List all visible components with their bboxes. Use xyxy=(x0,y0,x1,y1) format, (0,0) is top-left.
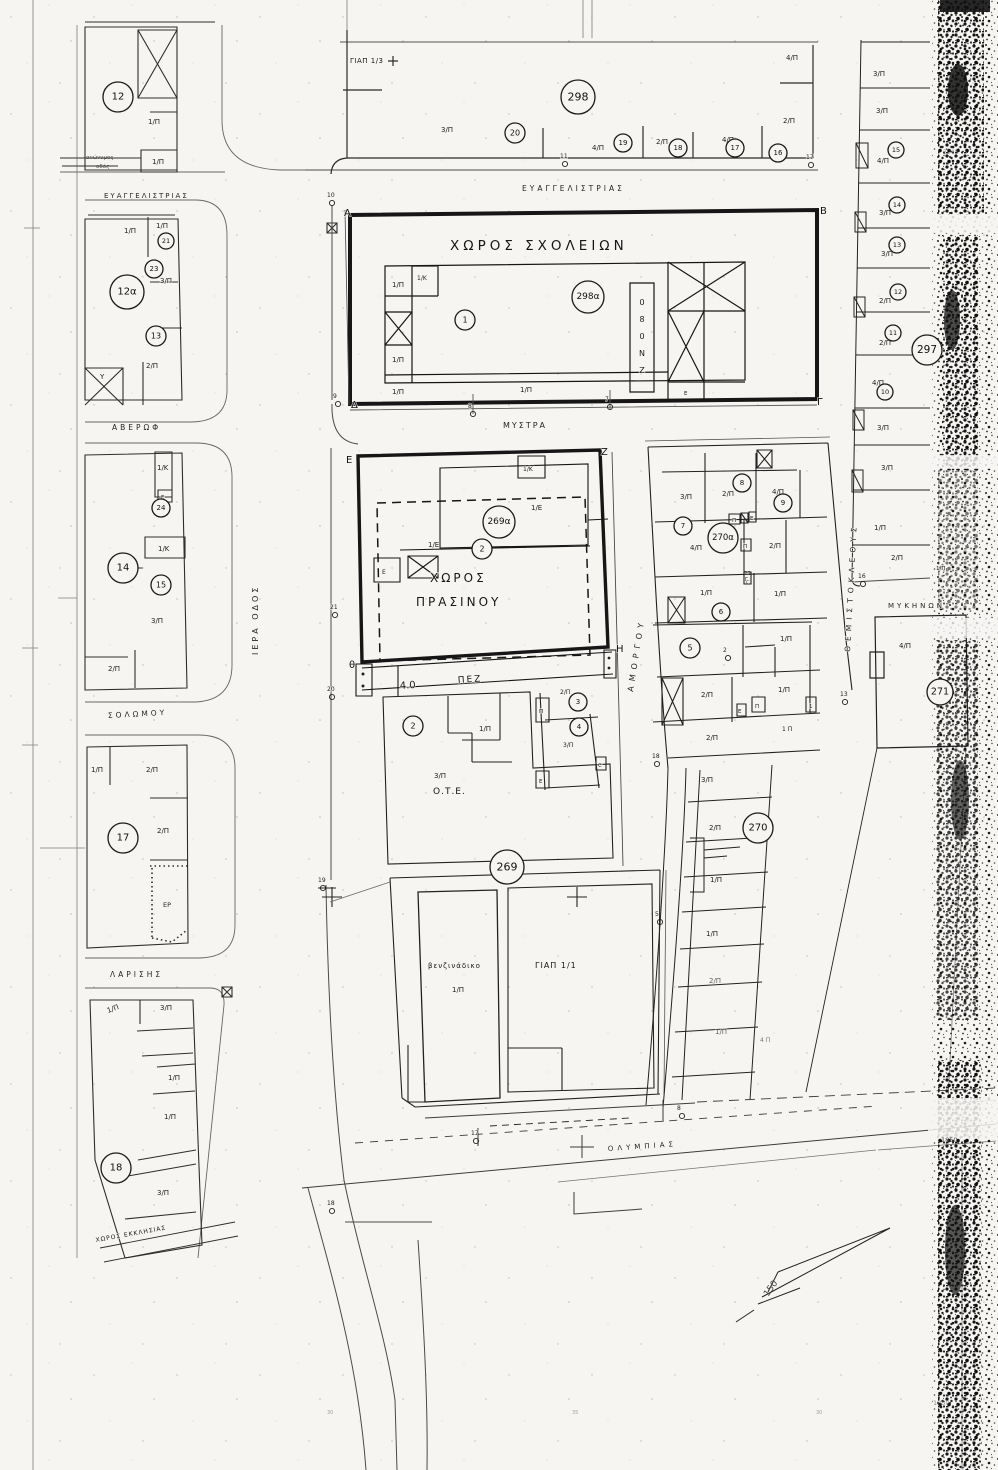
plot-floors-label: 1/Π xyxy=(392,356,404,364)
area-use-label: ΓΙΑΠ 1/1 xyxy=(535,961,577,970)
parcel-number: 7 xyxy=(681,522,685,530)
plot-floors-label: 1/Π xyxy=(706,930,718,938)
parcel-number: 270α xyxy=(712,533,734,543)
plot-floors-label: 2/Π xyxy=(722,490,734,498)
cadastral-map-sheet: ΕΥΑΓΓΕΛΙΣΤΡΙΑΣΕΥΑΓΓΕΛΙΣΤΡΙΑΣΑΒΕΡΩΦΜΥΣΤΡΑ… xyxy=(0,0,998,1470)
corner-letter: Β xyxy=(820,206,827,217)
parcel-number: 18 xyxy=(674,144,683,152)
plot-floors-label: 1/Κ xyxy=(158,545,170,553)
plot-floors-label: 1/Π xyxy=(124,227,136,235)
plot-floors-label: ΕΡ xyxy=(163,901,171,909)
plot-floors-label: 3/Π xyxy=(879,209,891,217)
plot-floors-label: 2/Π xyxy=(891,554,903,562)
area-use-label: βενζινάδικο xyxy=(428,962,481,970)
plot-floors-label: 3/Π xyxy=(160,277,172,285)
plot-floors-label: Ε xyxy=(738,709,742,715)
survey-point-number: 16 xyxy=(858,573,866,580)
plot-floors-label: 3/Π xyxy=(563,742,573,749)
plot-floors-label: 1/Κ xyxy=(417,275,428,282)
area-use-label: Ο.Τ.Ε. xyxy=(433,787,466,797)
parcel-number: 20 xyxy=(510,129,520,138)
plot-floors-label: 3/Π xyxy=(877,424,889,432)
parcel-number: 298 xyxy=(568,91,589,104)
plot-floors-label: 3/Π xyxy=(441,126,453,134)
plot-floors-label: 1/Π xyxy=(780,635,792,643)
survey-point-number: 20 xyxy=(327,686,335,693)
parcel-number: 12 xyxy=(894,288,902,296)
plot-floors-label: 4/Π xyxy=(786,54,798,62)
survey-point-number: 2 xyxy=(723,647,727,654)
plot-floors-label: 1/Π xyxy=(710,876,722,884)
area-use-label: ΧΩΡΟΣ ΣΧΟΛΕΙΩΝ xyxy=(450,238,628,254)
parcel-number: 15 xyxy=(156,581,166,590)
plot-floors-label: 2/Π xyxy=(709,977,721,985)
plot-floors-label: 2/Π xyxy=(706,734,718,742)
parcel-number: 14 xyxy=(117,563,130,574)
parcel-number: 12α xyxy=(117,287,137,298)
survey-point-number: 19 xyxy=(318,877,326,884)
corner-letter: θ xyxy=(349,660,355,671)
plot-floors-label: Π xyxy=(743,544,747,550)
plot-floors-label: 1/Π xyxy=(774,590,786,598)
survey-point-number: 5 xyxy=(655,911,659,918)
annotation-note: 1850 xyxy=(933,1399,950,1407)
plot-floors-label: 4 Π xyxy=(760,1037,770,1044)
parcel-number: 270 xyxy=(748,823,767,834)
survey-point-number: 10 xyxy=(327,192,335,199)
plot-floors-label: 1/Ε xyxy=(428,541,439,549)
corner-letter: Ζ xyxy=(601,447,608,458)
plot-floors-label: 2/Π xyxy=(656,138,668,146)
street-name-label: ΙΕΡΑ ΟΔΟΣ xyxy=(251,585,260,655)
plot-floors-label: 4/Π xyxy=(592,144,604,152)
survey-point-number: 17 xyxy=(806,154,814,161)
plot-floors-label: 2/Π xyxy=(769,542,781,550)
plot-floors-label: 1/Π xyxy=(168,1074,180,1082)
annotation-note: 35 xyxy=(572,1410,578,1416)
plot-floors-label: Ε xyxy=(750,516,754,522)
survey-point-number: 18 xyxy=(327,1200,335,1207)
survey-point-number: 9 xyxy=(333,393,337,400)
corner-letter: Δ xyxy=(351,400,358,411)
parcel-number: 13 xyxy=(893,241,901,249)
plot-floors-label: Ε xyxy=(684,391,688,397)
parcel-number: 4 xyxy=(577,723,582,731)
plot-floors-label: 3/Π xyxy=(151,617,163,625)
plot-floors-label: 2/Π xyxy=(709,824,721,832)
plot-floors-label: 3/Π xyxy=(876,107,888,115)
plot-floors-label: 1/Π xyxy=(152,158,164,166)
plot-floors-label: 3/Π xyxy=(157,1189,169,1197)
plot-floors-label: 2/Π xyxy=(783,117,795,125)
plot-floors-label: 4/Π xyxy=(690,544,702,552)
survey-point-number: 21 xyxy=(330,604,338,611)
plot-floors-label: 4/Π xyxy=(877,157,889,165)
plot-floors-label: 1/Π xyxy=(164,1113,176,1121)
street-name-label: ΕΥΑΓΓΕΛΙΣΤΡΙΑΣ xyxy=(104,192,189,200)
plot-floors-label: 1/Π xyxy=(936,566,946,572)
corner-letter: Γ xyxy=(817,397,823,408)
annotation-note: C xyxy=(746,580,750,586)
corner-letter: Α xyxy=(344,208,351,219)
survey-point-number: 18 xyxy=(652,753,660,760)
annotation-note: 1850 xyxy=(941,1136,958,1144)
annotation-note: οδός xyxy=(96,163,109,170)
plot-floors-label: 1/Π xyxy=(479,725,491,733)
parcel-number: 14 xyxy=(893,201,901,209)
vertical-building-label-letter: Ζ xyxy=(639,366,645,375)
street-name-label: ΕΥΑΓΓΕΛΙΣΤΡΙΑΣ xyxy=(522,184,625,193)
cadastral-map: ΕΥΑΓΓΕΛΙΣΤΡΙΑΣΕΥΑΓΓΕΛΙΣΤΡΙΑΣΑΒΕΡΩΦΜΥΣΤΡΑ… xyxy=(0,0,998,1470)
scan-noise-band xyxy=(928,0,998,1470)
area-use-label: ΠΕΖ xyxy=(458,674,483,686)
plot-floors-label: 2/Π xyxy=(560,689,570,696)
plot-floors-label: 2/Π xyxy=(701,691,713,699)
parcel-number: 298α xyxy=(576,292,599,302)
plot-floors-label: 3/Π xyxy=(881,464,893,472)
annotation-note: 22 xyxy=(744,571,751,577)
vertical-building-label-letter: 0 xyxy=(639,298,644,307)
parcel-number: 3 xyxy=(576,698,580,706)
plot-floors-label: Ε xyxy=(539,779,543,785)
parcel-number: 271 xyxy=(931,687,949,698)
annotation-note: 30 xyxy=(327,1410,333,1416)
street-name-label: ΜΥΚΗΝΩΝ xyxy=(888,602,945,610)
plot-floors-label: 3/Π xyxy=(434,772,446,780)
parcel-number: 13 xyxy=(151,332,161,341)
parcel-number: 10 xyxy=(881,388,889,396)
plot-floors-label: 3/Π xyxy=(873,70,885,78)
parcel-number: 2 xyxy=(410,722,415,731)
plot-floors-label: 1/Π xyxy=(91,766,103,774)
parcel-number: 15 xyxy=(892,146,900,154)
plot-floors-label: 2/Π xyxy=(108,665,120,673)
plot-floors-label: Π xyxy=(732,518,736,524)
survey-point-number: 8 xyxy=(677,1105,681,1112)
plot-floors-label: 1/Κ xyxy=(523,466,534,473)
plot-floors-label: Υ xyxy=(99,373,105,381)
survey-point-number: 8 xyxy=(468,403,472,410)
vertical-building-label-letter: 8 xyxy=(639,315,644,324)
plot-floors-label: 1/Π xyxy=(156,222,168,230)
parcel-number: 12 xyxy=(112,92,125,103)
vertical-building-label-letter: Ν xyxy=(639,349,645,358)
street-name-label: ΑΒΕΡΩΦ xyxy=(112,423,161,432)
area-use-label: ΠΡΑΣΙΝΟΥ xyxy=(416,595,501,609)
parcel-number: 19 xyxy=(619,139,628,147)
parcel-number: 6 xyxy=(719,608,724,616)
parcel-number: 1 xyxy=(462,316,467,325)
area-use-label: ΓΙΑΠ 1/3 xyxy=(350,57,384,65)
plot-floors-label: C xyxy=(598,763,602,769)
parcel-number: 269α xyxy=(487,517,510,527)
annotation-note: ανώνυμος xyxy=(86,154,114,161)
corner-letter: Ε xyxy=(346,455,352,466)
parcel-number: 297 xyxy=(917,344,937,356)
plot-floors-label: 3/Π xyxy=(160,1004,172,1012)
survey-point-number: 11 xyxy=(560,153,568,160)
parcel-number: 11 xyxy=(889,329,897,337)
plot-floors-label: 2/Π xyxy=(879,297,891,305)
parcel-number: 18 xyxy=(110,1163,123,1174)
parcel-number: 21 xyxy=(162,237,170,245)
annotation-note: 2040 xyxy=(943,149,958,156)
plot-floors-label: 4/Π xyxy=(899,642,911,650)
plot-floors-label: 1/Κ xyxy=(157,464,169,472)
parcel-number: 9 xyxy=(781,499,785,507)
plot-floors-label: 2/Π xyxy=(146,766,158,774)
plot-floors-label: 1/Ε xyxy=(531,504,542,512)
plot-floors-label: 1/Π xyxy=(874,524,886,532)
plot-floors-label: 1 xyxy=(809,704,813,710)
vertical-building-label-letter: 0 xyxy=(639,332,644,341)
parcel-number: 23 xyxy=(150,265,159,273)
survey-point-number: 7 xyxy=(605,396,609,403)
plot-floors-label: 1/Π xyxy=(700,589,712,597)
corner-letter: Η xyxy=(616,644,624,655)
parcel-number: 269 xyxy=(497,861,518,874)
plot-floors-label: 4.0 xyxy=(399,680,416,692)
plot-floors-label: Ε xyxy=(382,569,386,576)
plot-floors-label: 2/Π xyxy=(157,827,169,835)
plot-floors-label: 2/Π xyxy=(146,362,158,370)
area-use-label: ΧΩΡΟΣ xyxy=(430,571,487,585)
parcel-number: 17 xyxy=(117,833,130,844)
plot-floors-label: 1/Π xyxy=(452,986,464,994)
plot-floors-label: 1 Π xyxy=(782,726,792,733)
annotation-note: 30 xyxy=(816,1410,822,1416)
parcel-number: 16 xyxy=(774,149,783,157)
street-name-label: ΛΑΡΙΣΗΣ xyxy=(110,970,163,979)
plot-floors-label: 1/Π xyxy=(778,686,790,694)
survey-point-number: 17 xyxy=(471,1130,479,1137)
plot-floors-label: 1/Π xyxy=(520,386,532,394)
parcel-number: 17 xyxy=(731,144,740,152)
parcel-number: 5 xyxy=(687,644,692,653)
parcel-number: 24 xyxy=(157,504,166,512)
plot-floors-label: Π xyxy=(755,704,759,710)
parcel-number: 8 xyxy=(740,479,744,487)
parcel-number: 2 xyxy=(479,545,484,554)
plot-floors-label: Π xyxy=(539,709,543,715)
plot-floors-label: 1/Π xyxy=(392,281,404,289)
plot-floors-label: 1/Π xyxy=(148,118,160,126)
survey-point-number: 13 xyxy=(840,691,848,698)
plot-floors-label: 3/Π xyxy=(680,493,692,501)
street-name-label: ΜΥΣΤΡΑ xyxy=(503,421,547,430)
plot-floors-label: 1/Π xyxy=(715,1028,727,1036)
plot-floors-label: 1/Π xyxy=(392,388,404,396)
